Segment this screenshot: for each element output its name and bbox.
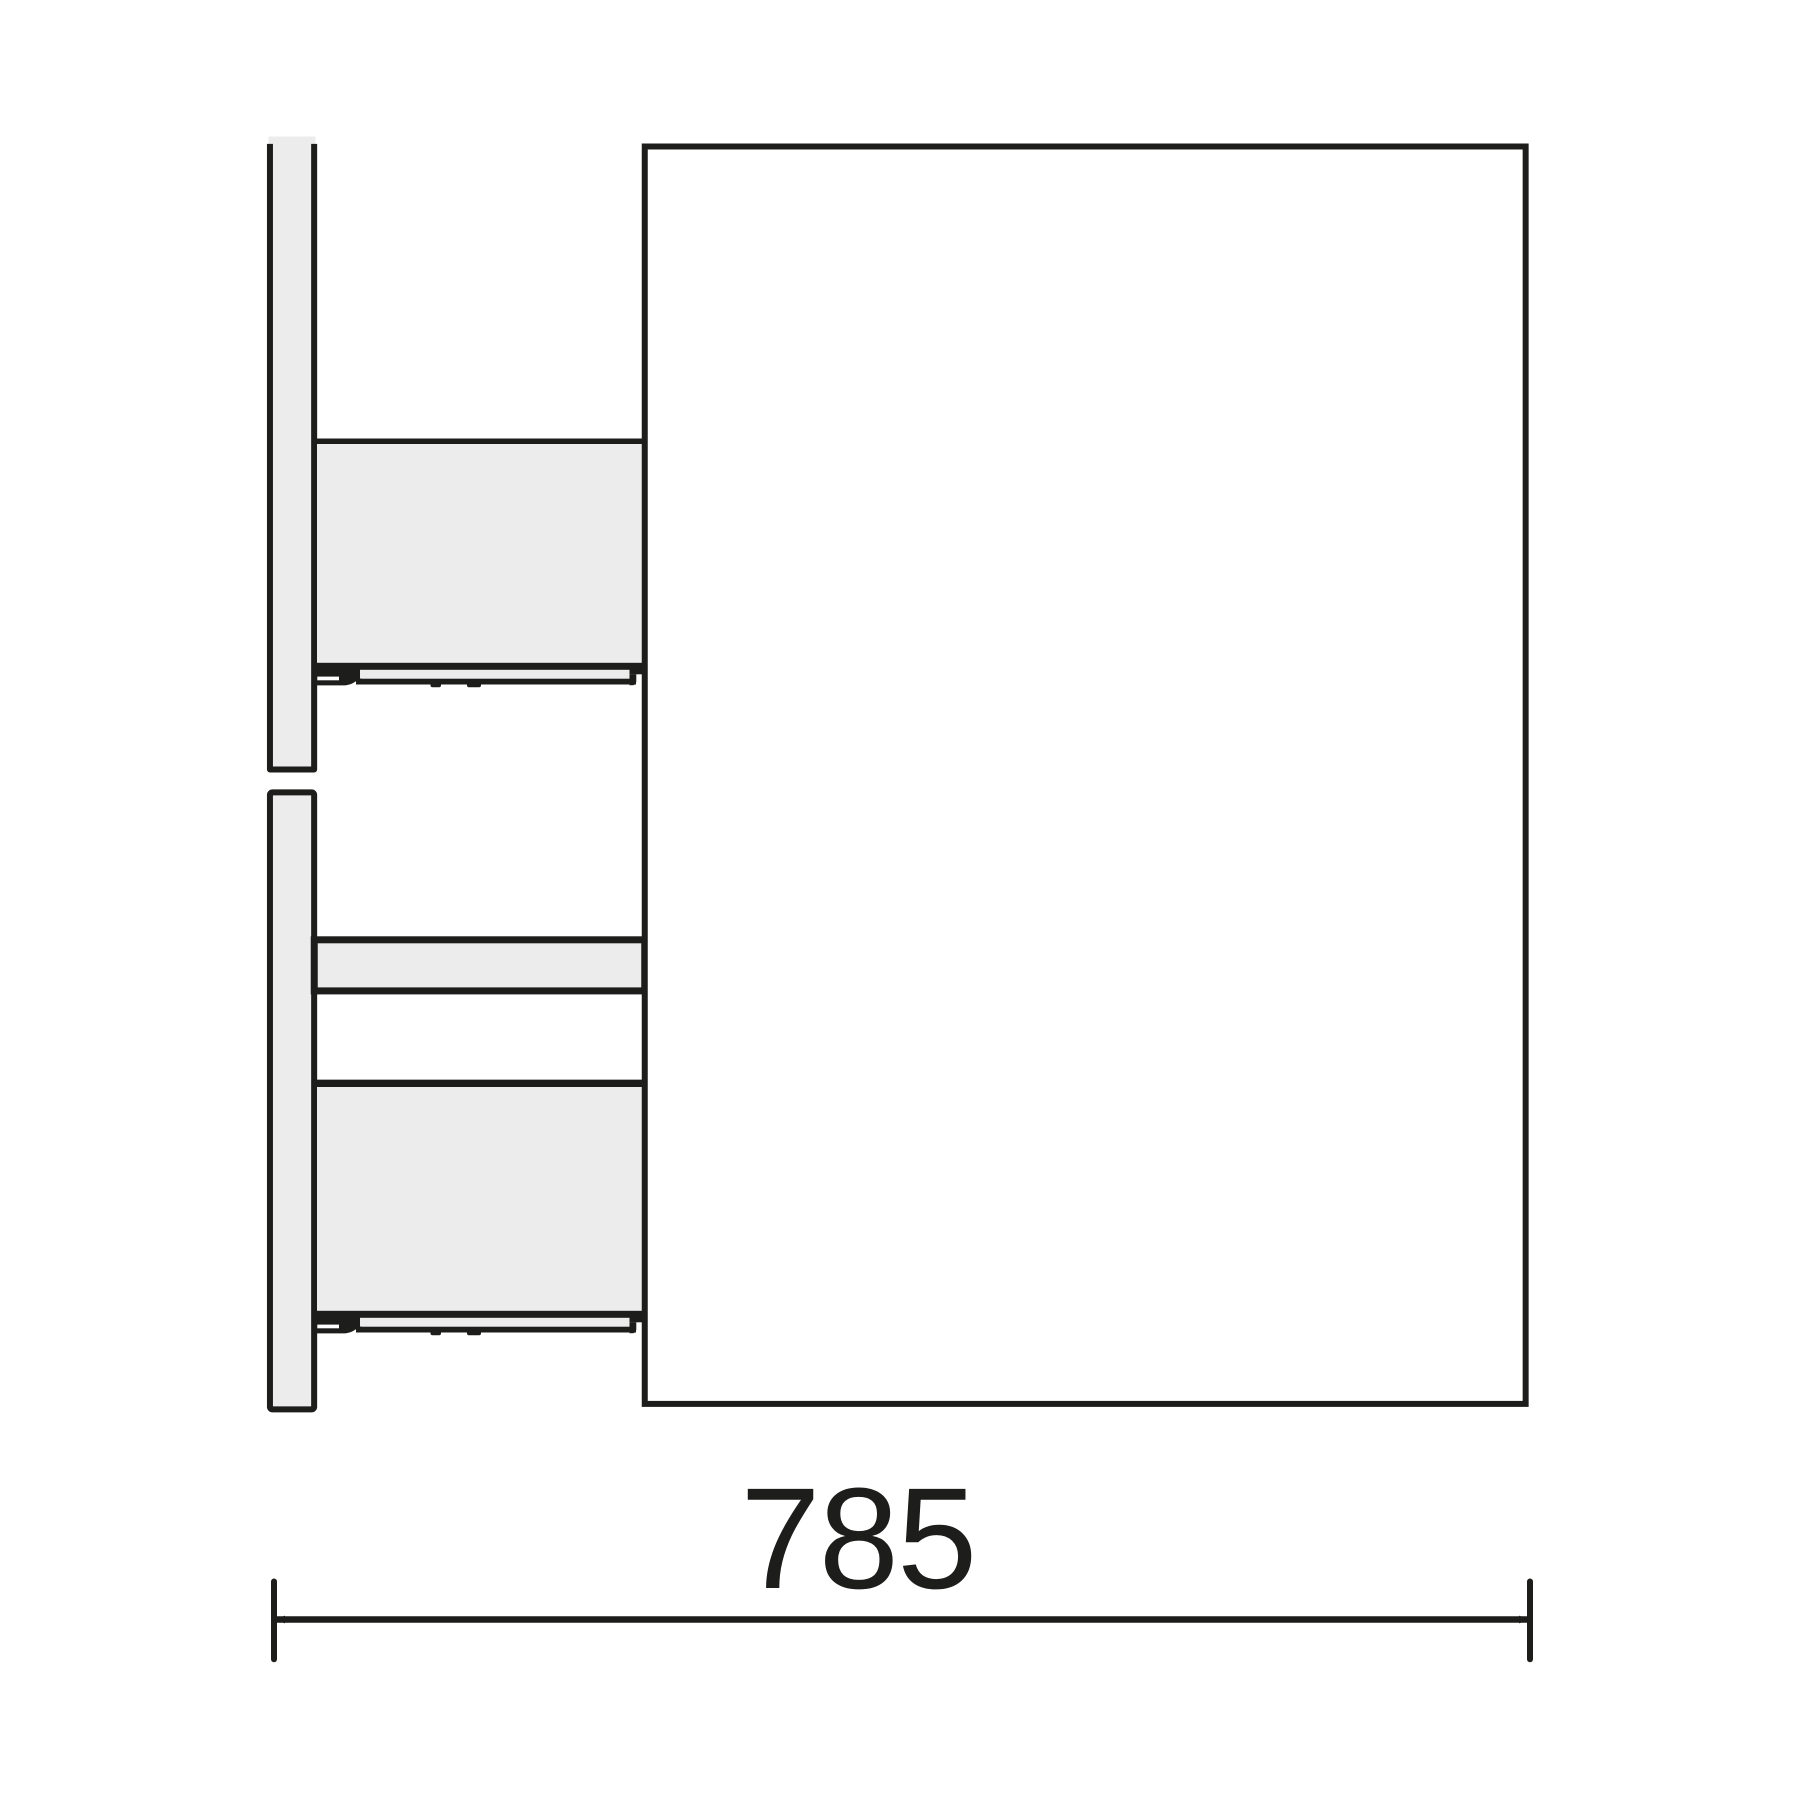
svg-text:785: 785 [740, 1458, 975, 1619]
